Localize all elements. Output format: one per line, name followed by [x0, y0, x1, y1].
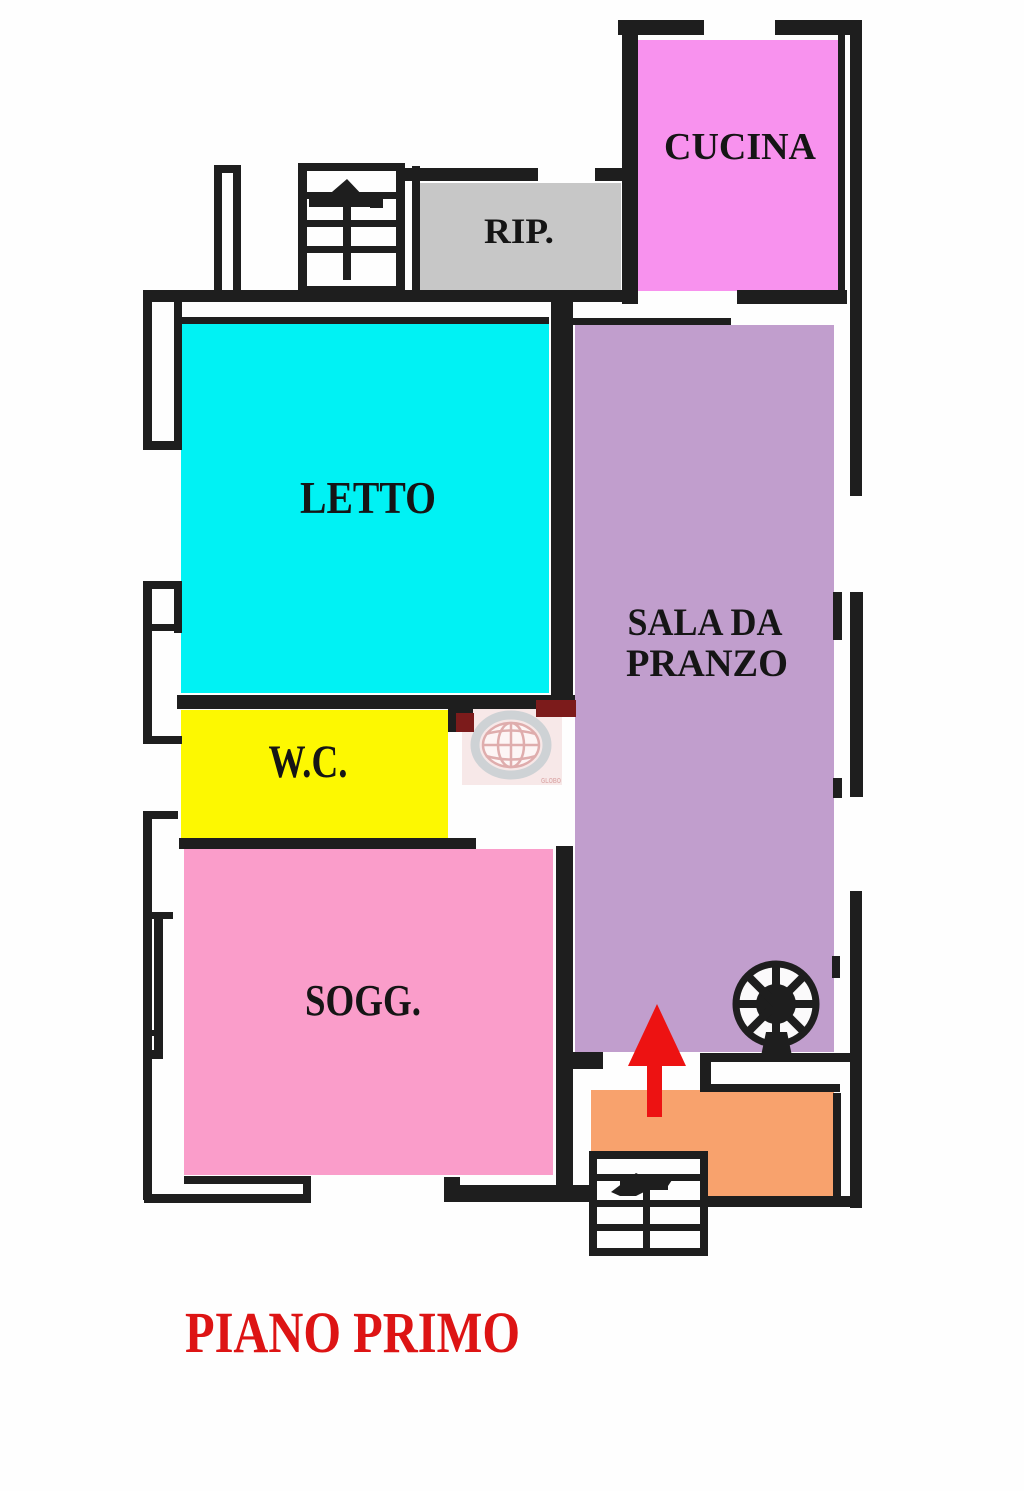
svg-text:RIP.: RIP. [484, 211, 554, 251]
svg-text:SALA DA: SALA DA [628, 601, 783, 644]
svg-text:PRANZO: PRANZO [626, 642, 788, 685]
svg-text:CUCINA: CUCINA [664, 126, 817, 168]
svg-text:SOGG.: SOGG. [305, 976, 421, 1025]
svg-text:W.C.: W.C. [269, 736, 348, 788]
svg-text:LETTO: LETTO [300, 472, 436, 523]
svg-text:PIANO PRIMO: PIANO PRIMO [185, 1300, 520, 1365]
svg-text:GLOBO: GLOBO [541, 778, 561, 785]
